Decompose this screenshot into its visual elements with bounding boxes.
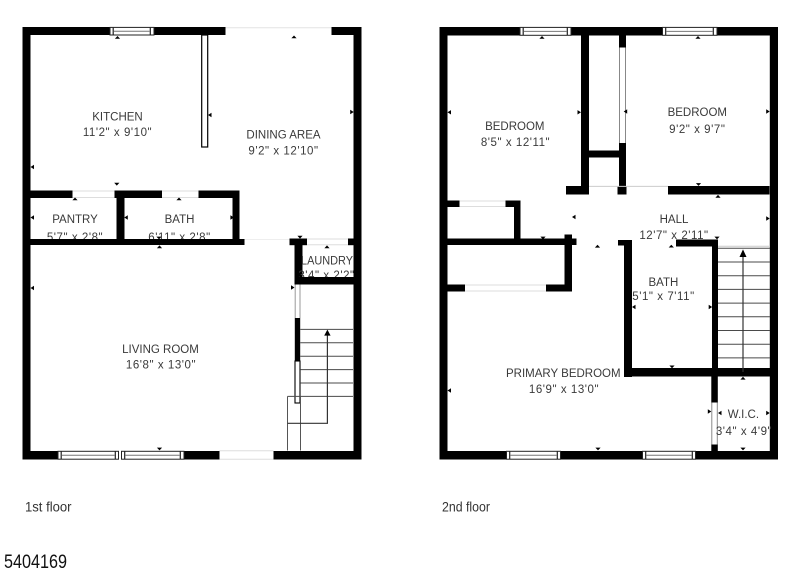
svg-text:BEDROOM: BEDROOM xyxy=(485,121,544,133)
svg-text:12'7" x 2'11": 12'7" x 2'11" xyxy=(639,230,708,242)
svg-text:PRIMARY BEDROOM: PRIMARY BEDROOM xyxy=(506,368,621,380)
svg-text:DINING AREA: DINING AREA xyxy=(246,130,320,142)
svg-text:PANTRY: PANTRY xyxy=(52,214,98,226)
svg-text:5'1" x 7'11": 5'1" x 7'11" xyxy=(632,291,694,303)
svg-text:BATH: BATH xyxy=(165,214,195,226)
svg-text:2nd floor: 2nd floor xyxy=(442,500,490,516)
svg-text:3'4" x 4'9": 3'4" x 4'9" xyxy=(716,426,772,438)
svg-text:9'2" x 9'7": 9'2" x 9'7" xyxy=(669,124,725,136)
svg-text:LIVING ROOM: LIVING ROOM xyxy=(122,344,199,356)
svg-text:BEDROOM: BEDROOM xyxy=(668,107,727,119)
svg-text:16'8" x 13'0": 16'8" x 13'0" xyxy=(126,360,196,372)
svg-text:9'2" x 12'10": 9'2" x 12'10" xyxy=(248,146,318,158)
svg-text:8'5" x 12'11": 8'5" x 12'11" xyxy=(481,137,550,149)
svg-text:KITCHEN: KITCHEN xyxy=(92,112,142,124)
svg-text:11'2" x 9'10": 11'2" x 9'10" xyxy=(83,127,152,139)
svg-text:LAUNDRY: LAUNDRY xyxy=(301,256,353,268)
svg-text:1st floor: 1st floor xyxy=(25,500,72,516)
svg-text:5404169: 5404169 xyxy=(4,551,67,571)
svg-text:W.I.C.: W.I.C. xyxy=(728,409,759,421)
svg-text:16'9" x 13'0": 16'9" x 13'0" xyxy=(529,384,599,396)
svg-text:BATH: BATH xyxy=(648,277,678,289)
svg-text:HALL: HALL xyxy=(660,214,689,226)
